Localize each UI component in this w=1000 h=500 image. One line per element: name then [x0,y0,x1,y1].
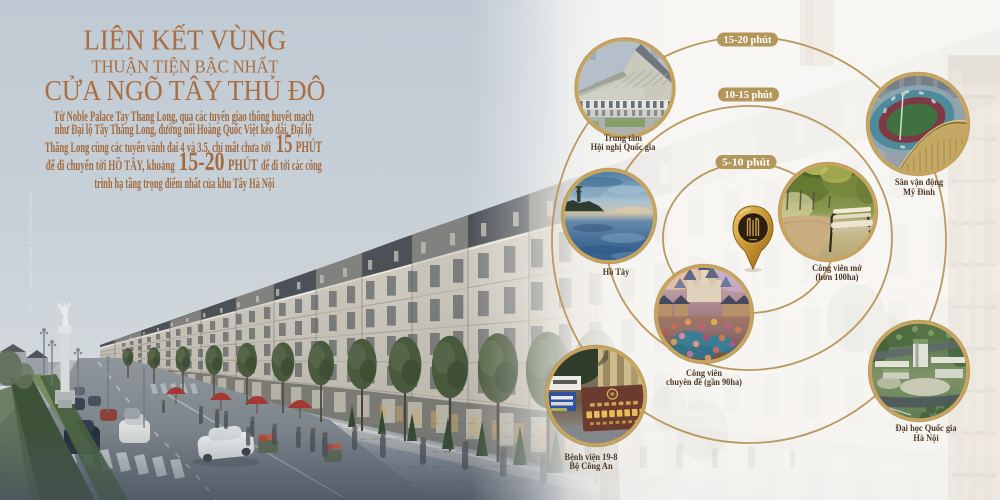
svg-text:15: 15 [276,129,293,158]
svg-text:5-10 phút: 5-10 phút [722,158,771,169]
svg-text:để đi chuyển tới HỒ TÂY, khoản: để đi chuyển tới HỒ TÂY, khoảng [46,156,175,174]
svg-text:15-20 phút: 15-20 phút [724,35,772,46]
svg-text:để đi tới các công: để đi tới các công [261,158,322,174]
svg-text:15-20: 15-20 [179,147,225,176]
svg-text:PHÚT: PHÚT [228,155,258,174]
svg-text:như Đại lộ Tây Thăng Long, đườ: như Đại lộ Tây Thăng Long, đường nối Hoà… [55,122,312,138]
svg-text:trình hạ tầng trọng điểm nhất: trình hạ tầng trọng điểm nhất của khu Tâ… [94,176,274,192]
svg-text:THUẬN TIỆN BẬC NHẤT: THUẬN TIỆN BẬC NHẤT [92,56,279,77]
svg-text:PHÚT: PHÚT [296,137,322,156]
svg-text:Thăng Long cùng các tuyến vành: Thăng Long cùng các tuyến vành đai 4 và … [45,140,271,156]
svg-text:10-15 phút: 10-15 phút [725,90,773,101]
svg-text:CỬA NGÕ TÂY THỦ ĐÔ: CỬA NGÕ TÂY THỦ ĐÔ [45,74,326,107]
svg-text:LIÊN KẾT VÙNG: LIÊN KẾT VÙNG [84,25,287,57]
